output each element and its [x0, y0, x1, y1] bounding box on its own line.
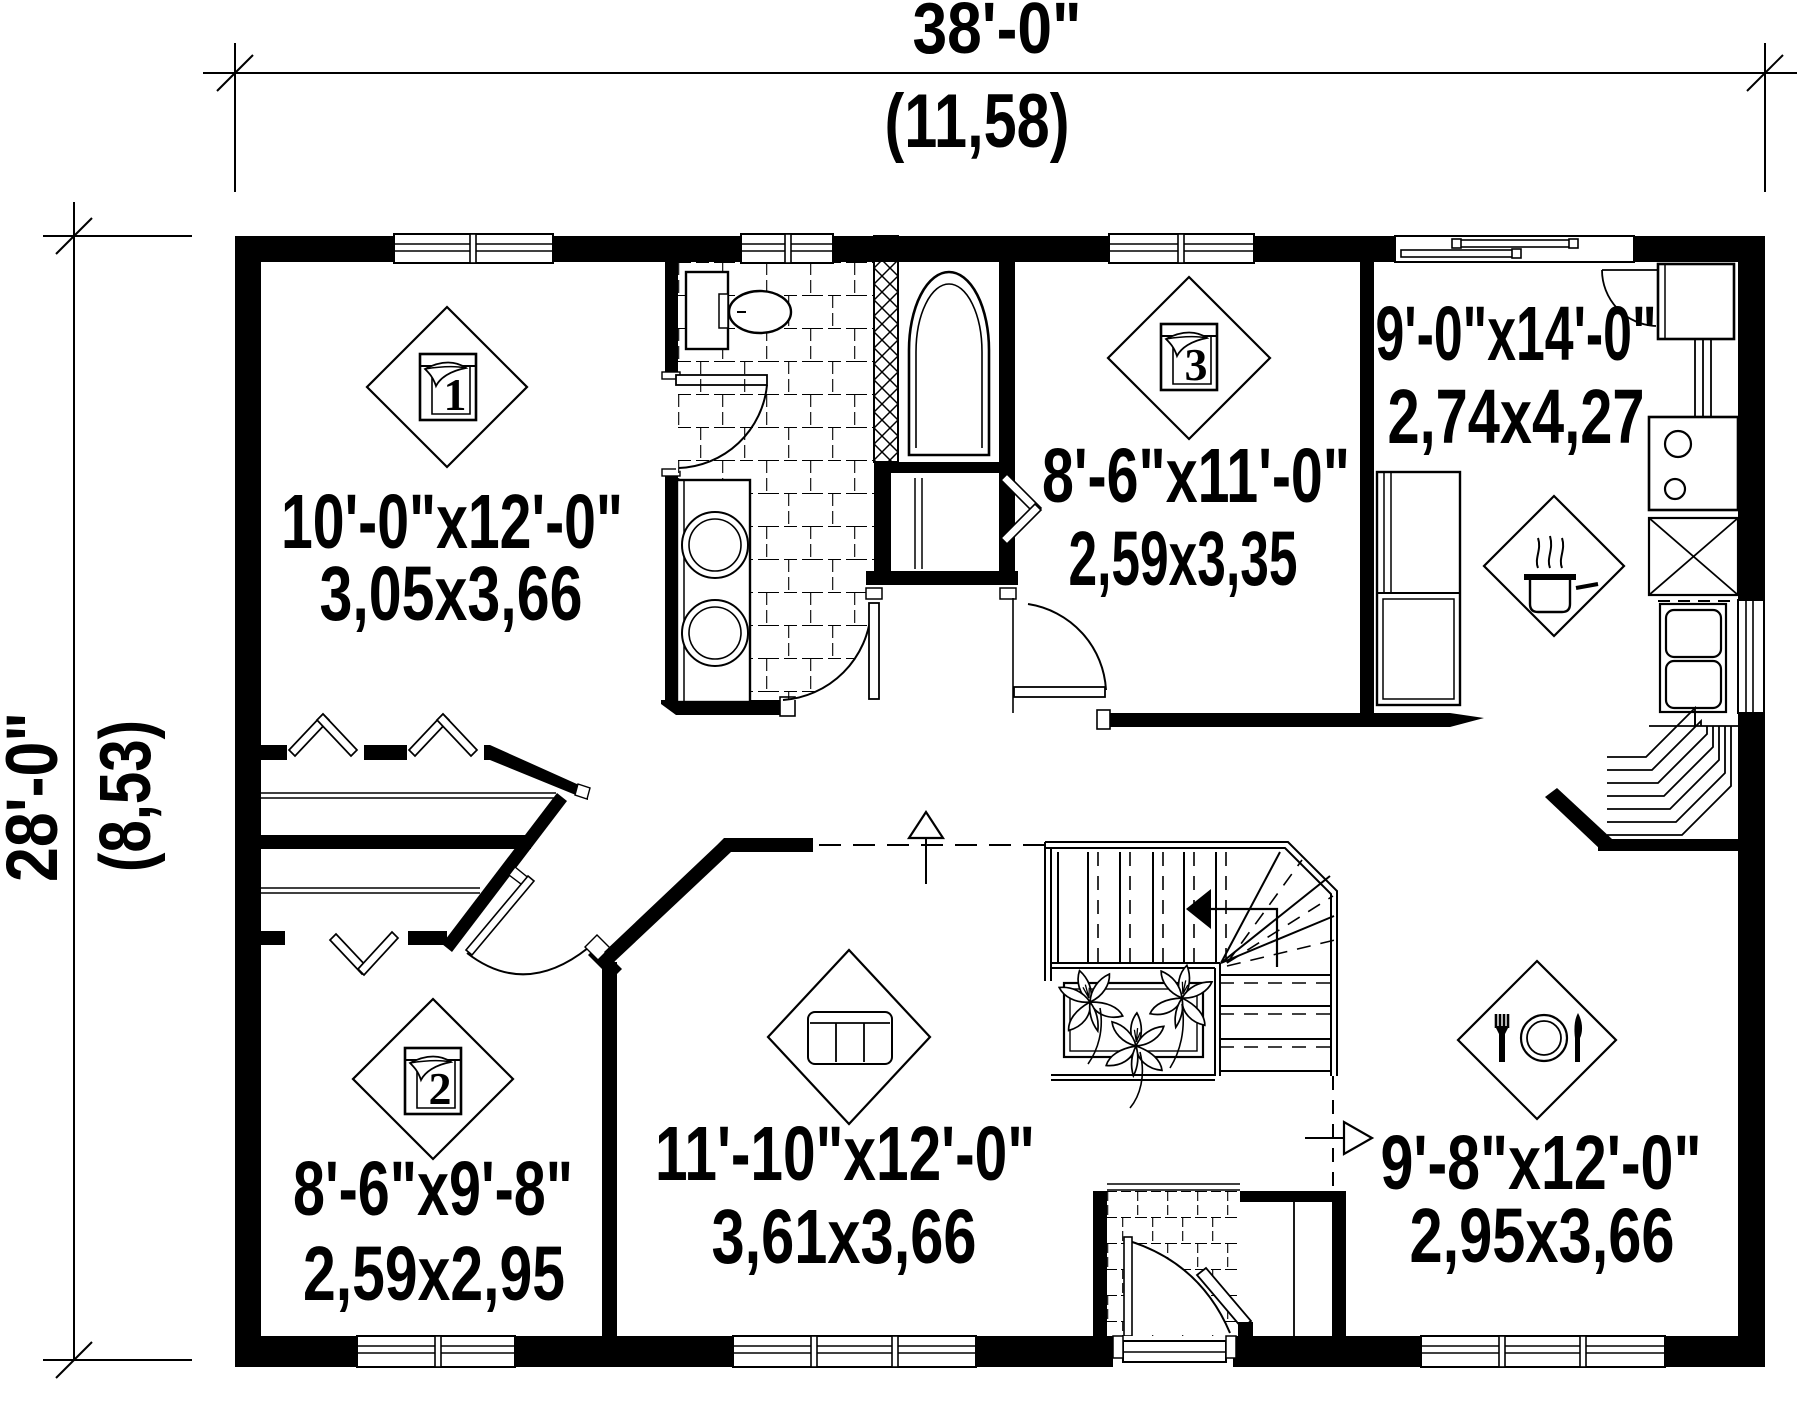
- svg-text:8'-6"x11'-0": 8'-6"x11'-0": [1042, 433, 1350, 519]
- svg-text:28'-0": 28'-0": [0, 712, 73, 882]
- svg-text:9'-0"x14'-0": 9'-0"x14'-0": [1376, 291, 1657, 377]
- svg-text:38'-0": 38'-0": [913, 0, 1082, 69]
- svg-text:3,05x3,66: 3,05x3,66: [320, 551, 583, 637]
- svg-text:2,59x2,95: 2,59x2,95: [303, 1231, 565, 1317]
- svg-text:11'-10"x12'-0": 11'-10"x12'-0": [655, 1111, 1035, 1197]
- svg-text:2,95x3,66: 2,95x3,66: [1410, 1193, 1675, 1279]
- svg-text:(11,58): (11,58): [885, 79, 1070, 164]
- svg-text:(8,53): (8,53): [86, 720, 166, 872]
- svg-text:1: 1: [444, 369, 467, 420]
- svg-text:2,59x3,35: 2,59x3,35: [1069, 516, 1298, 602]
- svg-text:2: 2: [429, 1063, 452, 1114]
- svg-text:3,61x3,66: 3,61x3,66: [712, 1194, 977, 1280]
- svg-text:3: 3: [1185, 339, 1208, 390]
- svg-text:2,74x4,27: 2,74x4,27: [1388, 374, 1645, 460]
- svg-text:8'-6"x9'-8": 8'-6"x9'-8": [293, 1146, 573, 1232]
